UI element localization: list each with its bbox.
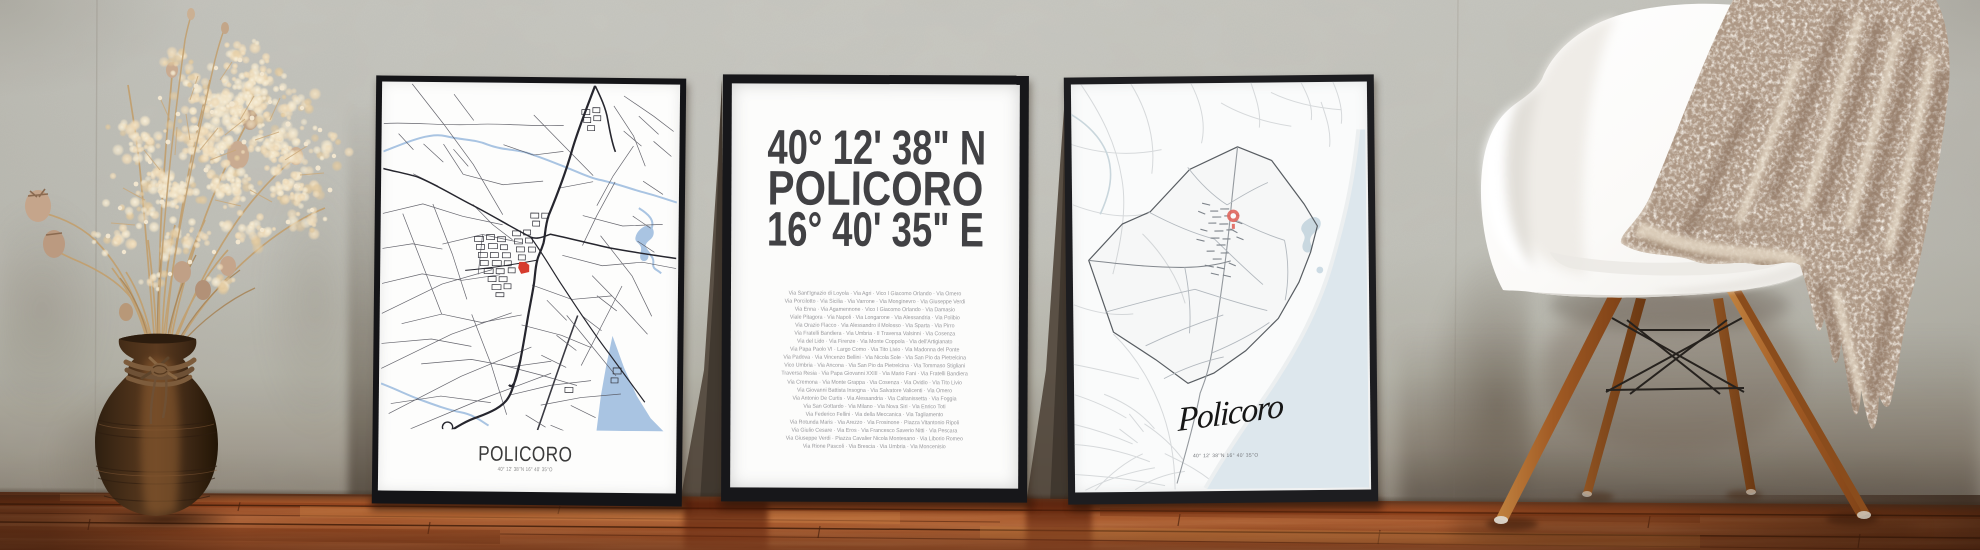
svg-text:40° 12' 38''N 16° 40' 35''O: 40° 12' 38''N 16° 40' 35''O: [1193, 453, 1259, 460]
